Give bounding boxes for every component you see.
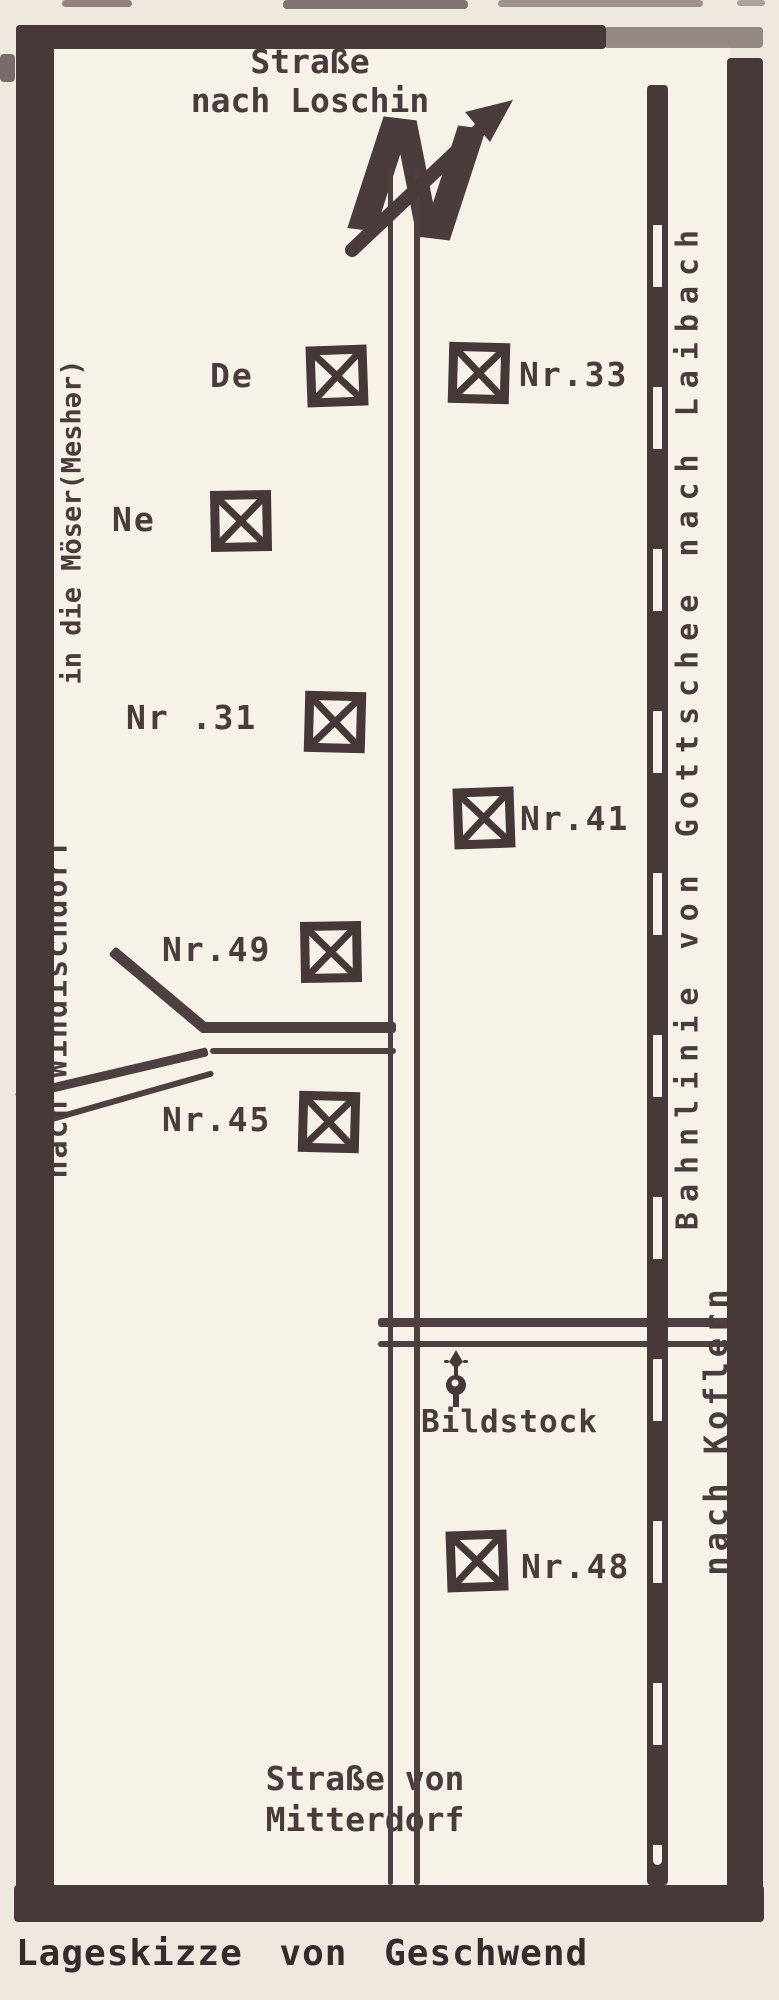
building-symbol-de <box>305 344 369 408</box>
koflern-road-lower-line <box>378 1341 732 1347</box>
caption: Lageskizze von Geschwend <box>16 1933 588 1974</box>
map-frame-top-faded <box>604 27 763 48</box>
scan-artifact <box>0 54 15 82</box>
koflern-road-upper-line <box>378 1318 732 1327</box>
main-road-east-line <box>414 168 420 1885</box>
bottom-road-label: Straße von Mitterdorf <box>215 1758 515 1840</box>
building-symbol-nr48 <box>445 1529 509 1593</box>
building-label-nr45: Nr.45 <box>162 1100 271 1139</box>
railway-label: Bahnlinie von Gottschee nach Laibach <box>671 220 706 1230</box>
bildstock-icon <box>441 1350 471 1408</box>
moeser-road-label: in die Möser(Meshər) <box>57 359 88 684</box>
building-label-nr41: Nr.41 <box>520 799 629 838</box>
building-label-nr33: Nr.33 <box>519 355 628 394</box>
building-symbol-nr33 <box>447 341 511 405</box>
railway-line <box>647 85 668 1885</box>
building-symbol-nr41 <box>452 786 516 850</box>
map-frame-left <box>16 25 54 1922</box>
bottom-road-label-line1: Straße von <box>215 1758 515 1799</box>
building-symbol-ne <box>209 489 272 552</box>
railway-dashes <box>653 125 662 1865</box>
scan-artifact <box>498 0 703 7</box>
building-symbol-nr45 <box>297 1090 361 1154</box>
fork-road-lower <box>210 1048 396 1054</box>
map-frame-right <box>727 58 763 1922</box>
building-symbol-nr49 <box>299 920 362 983</box>
building-label-nr49: Nr.49 <box>162 930 271 969</box>
building-symbol-nr31 <box>303 690 367 754</box>
building-label-ne: Ne <box>112 500 156 539</box>
bildstock-label: Bildstock <box>421 1404 598 1440</box>
building-label-de: De <box>210 356 254 395</box>
scan-artifact <box>737 0 765 6</box>
scan-artifact <box>62 0 132 7</box>
fork-road-upper <box>200 1022 396 1033</box>
north-arrow-icon <box>335 85 530 265</box>
bottom-road-label-line2: Mitterdorf <box>215 1799 515 1840</box>
building-label-nr31: Nr .31 <box>126 698 257 737</box>
map-frame-bottom <box>14 1885 764 1922</box>
scan-artifact <box>283 0 468 9</box>
building-label-nr48: Nr.48 <box>521 1547 630 1586</box>
map-frame-top <box>16 25 606 49</box>
